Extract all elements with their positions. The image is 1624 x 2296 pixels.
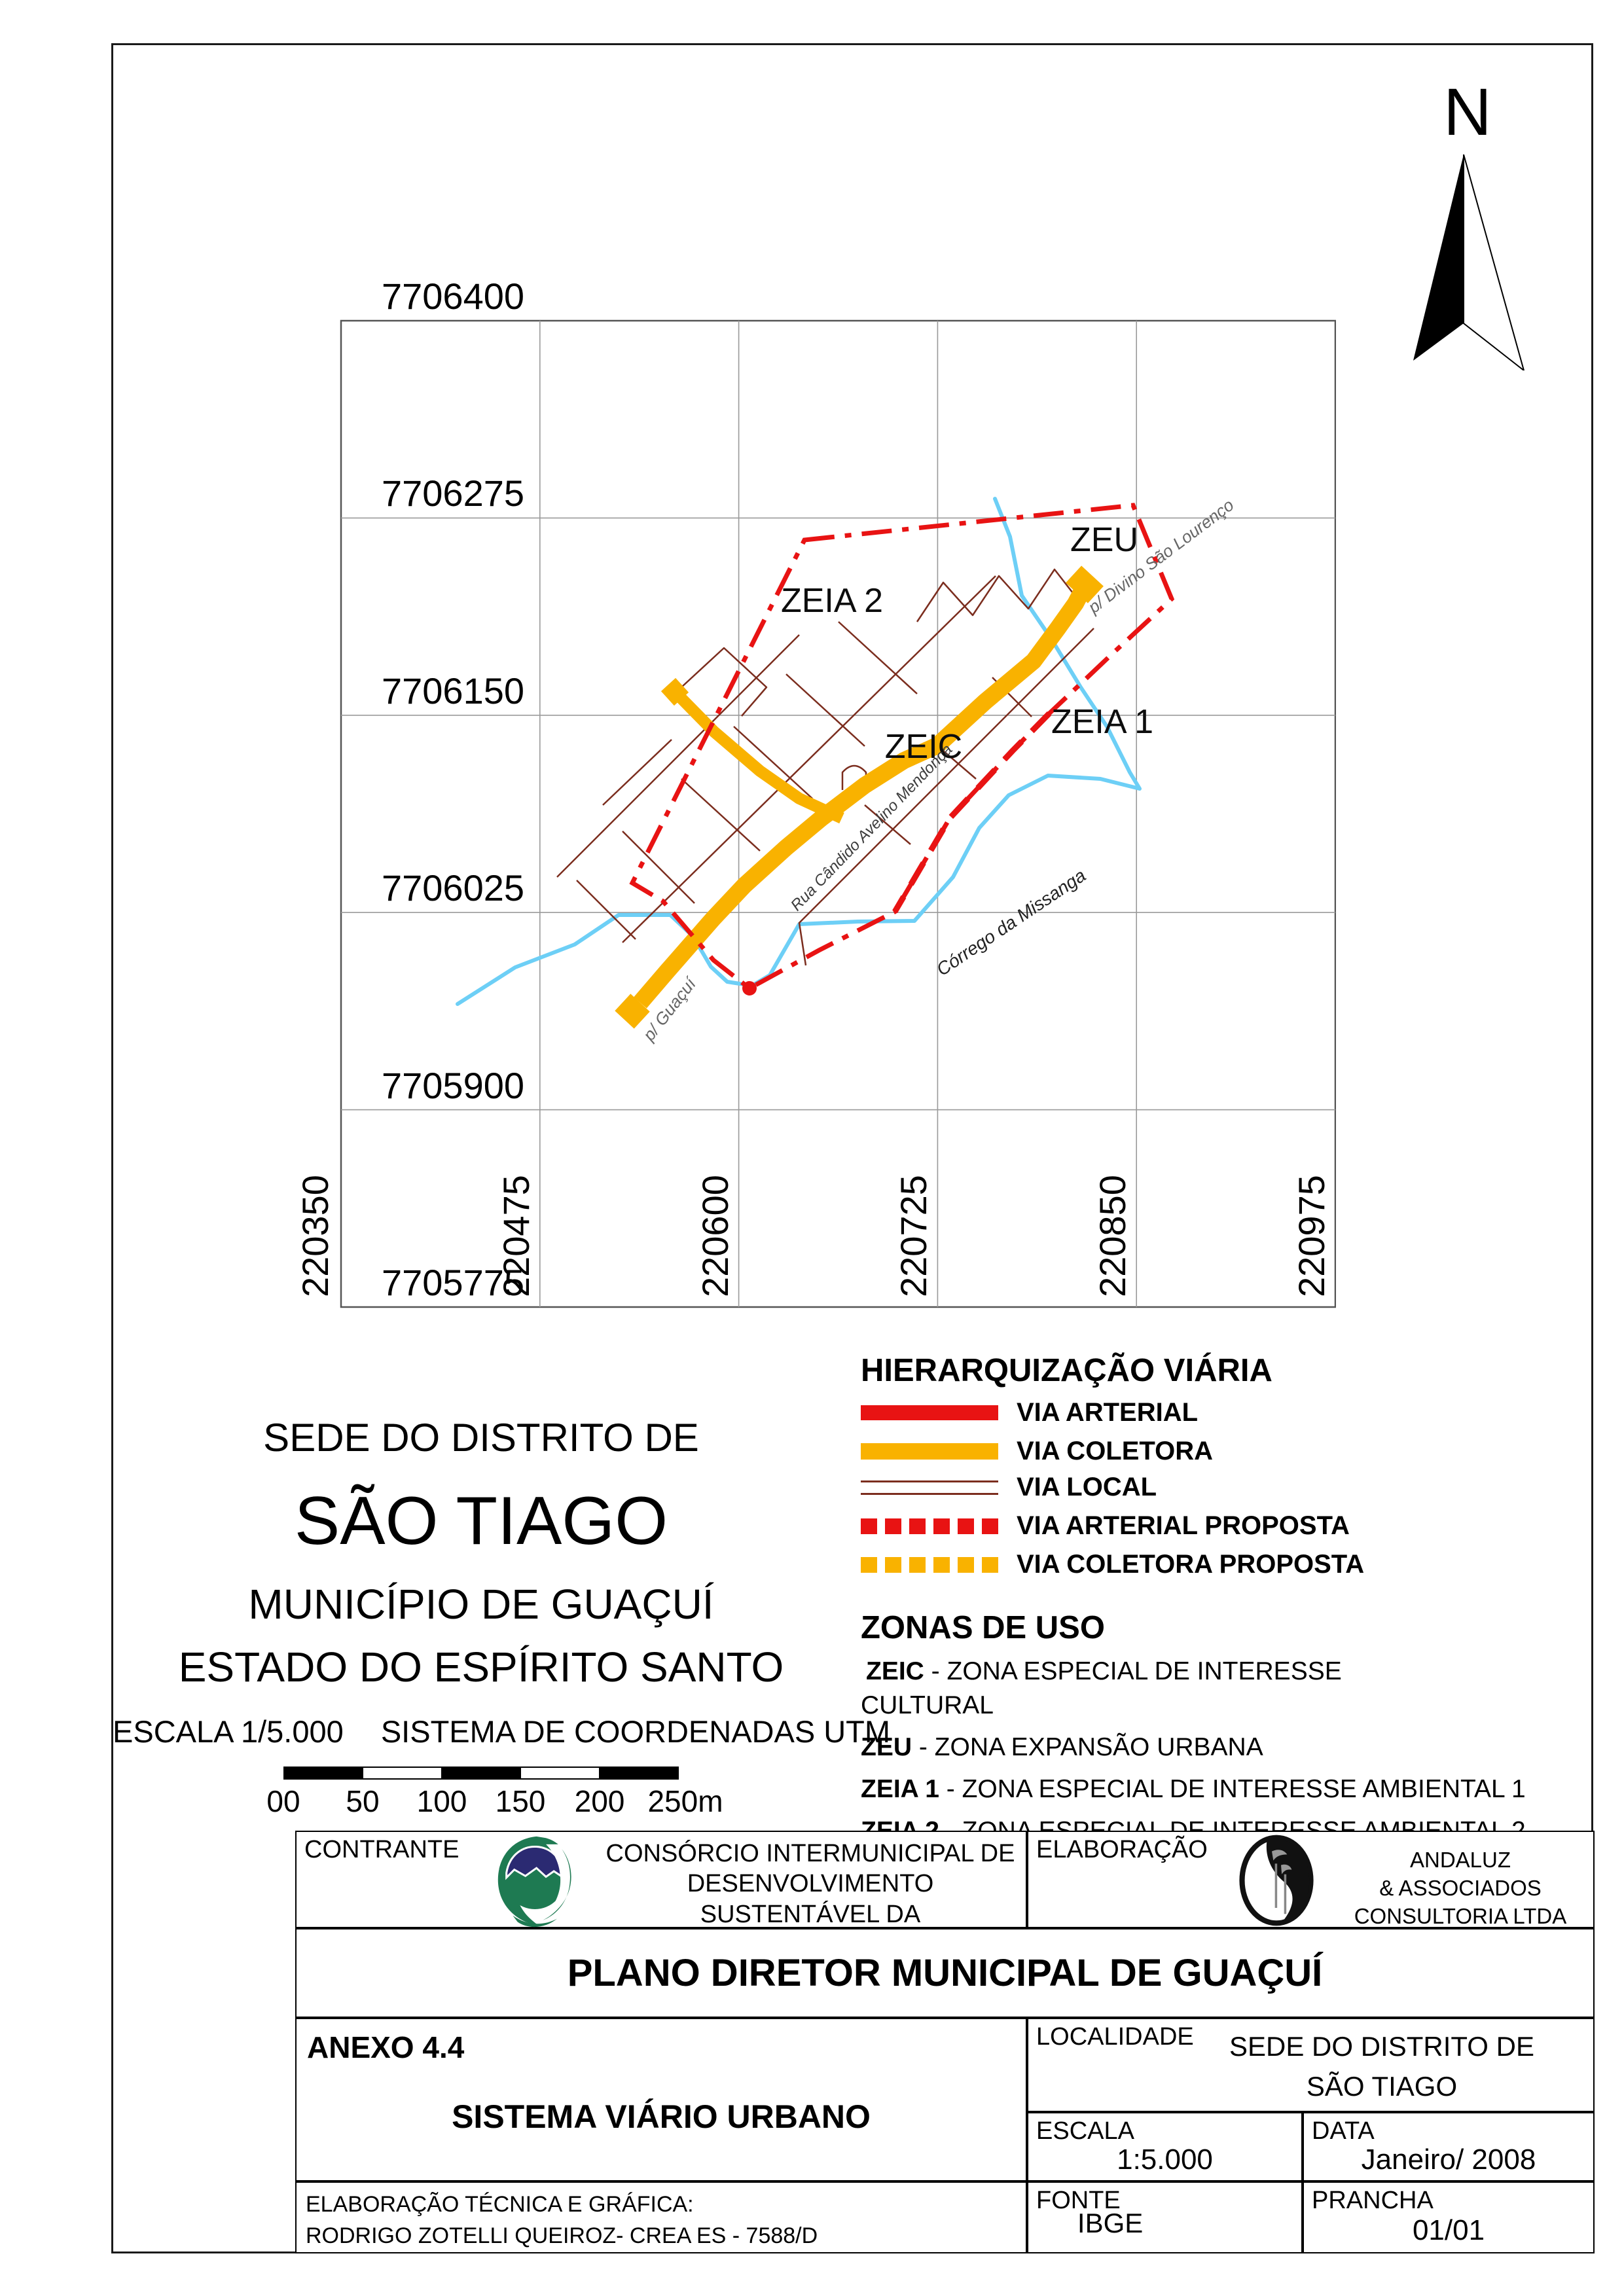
legend-item-arterial-proposta: VIA ARTERIAL PROPOSTA [861, 1511, 1607, 1541]
road-coletora-branch-cap [668, 685, 681, 699]
coords-text: SISTEMA DE COORDENADAS UTM [381, 1714, 890, 1749]
elaboracao-name-line: CONSULTORIA LTDA [1336, 1903, 1585, 1931]
x-label: 220350 [295, 1175, 336, 1297]
legend: HIERARQUIZAÇÃO VIÁRIA VIA ARTERIAL VIA C… [861, 1352, 1607, 1906]
scale-tick: 250m [633, 1784, 738, 1819]
legend-item-label: VIA ARTERIAL [1017, 1398, 1198, 1427]
tecnica-line: RODRIGO ZOTELLI QUEIROZ- CREA ES - 7588/… [306, 2221, 818, 2252]
north-arrow: N [1393, 79, 1543, 374]
elaboracao-cell: ELABORAÇÃO ANDALUZ & ASSOCIADOS CONSULTO… [1027, 1831, 1595, 1928]
fonte-value: IBGE [1028, 2208, 1192, 2239]
legend-item-coletora-proposta: VIA COLETORA PROPOSTA [861, 1550, 1607, 1579]
zone-label-zeia2: ZEIA 2 [781, 582, 883, 620]
scale-bar-segment [362, 1768, 442, 1778]
scale-bar-segment [285, 1768, 362, 1778]
y-label: 7705900 [382, 1065, 524, 1106]
y-label: 7706150 [382, 670, 524, 711]
map-sheet: N [0, 0, 1624, 2296]
zone-entry-zeia1: ZEIA 1 - ZONA ESPECIAL DE INTERESSE AMBI… [861, 1773, 1607, 1806]
scale-bar-segment [520, 1768, 600, 1778]
legend-title: HIERARQUIZAÇÃO VIÁRIA [861, 1352, 1607, 1389]
x-label: 220850 [1092, 1175, 1133, 1297]
map-canvas: ZEIA 2 ZEU ZEIC ZEIA 1 Rua Cândido Aveli… [262, 262, 1336, 1368]
sheet-subtitle: SISTEMA VIÁRIO URBANO [297, 2098, 1026, 2136]
zone-desc: - ZONA ESPECIAL DE INTERESSE AMBIENTAL 1 [939, 1775, 1526, 1803]
elaboracao-label: ELABORAÇÃO [1036, 1836, 1208, 1864]
zone-label-zeia1: ZEIA 1 [1051, 703, 1153, 741]
legend-item-coletora: VIA COLETORA [861, 1437, 1607, 1466]
scale-bar-segment [442, 1768, 520, 1778]
legend-item-label: VIA COLETORA PROPOSTA [1017, 1550, 1364, 1579]
localidade-cell: LOCALIDADE SEDE DO DISTRITO DE SÃO TIAGO [1027, 2018, 1595, 2112]
data-value: Janeiro/ 2008 [1304, 2144, 1593, 2176]
map-title-block: SEDE DO DISTRITO DE SÃO TIAGO MUNICÍPIO … [98, 1415, 864, 1820]
title-block: CONTRANTE CONSÓRCIO INTERMUNICIPAL DE DE… [295, 1831, 1595, 2253]
tecnica-credits: ELABORAÇÃO TÉCNICA E GRÁFICA: RODRIGO ZO… [306, 2189, 818, 2251]
x-label: 220975 [1291, 1175, 1332, 1297]
prancha-value: 01/01 [1304, 2214, 1593, 2247]
zone-desc: - ZONA ESPECIAL DE INTERESSE [924, 1657, 1342, 1685]
legend-item-label: VIA LOCAL [1017, 1473, 1157, 1502]
district-name: SÃO TIAGO [98, 1482, 864, 1560]
localidade-line: SEDE DO DISTRITO DE [1179, 2027, 1585, 2067]
elaboracao-name-line: ANDALUZ [1336, 1846, 1585, 1874]
zone-label-zeu: ZEU [1070, 521, 1138, 559]
zone-code: ZEU [861, 1733, 912, 1761]
x-label: 220600 [695, 1175, 736, 1297]
road-coletora-main-ne-cap [1077, 576, 1092, 593]
zones-title: ZONAS DE USO [861, 1609, 1607, 1646]
legend-item-label: VIA COLETORA [1017, 1437, 1213, 1466]
tecnica-cell: ELABORAÇÃO TÉCNICA E GRÁFICA: RODRIGO ZO… [295, 2181, 1027, 2253]
zone-code: ZEIA 1 [861, 1775, 939, 1803]
zone-desc: - ZONA EXPANSÃO URBANA [912, 1733, 1263, 1761]
localidade-line: SÃO TIAGO [1179, 2067, 1585, 2107]
arterial-swatch [861, 1405, 998, 1420]
map-svg: ZEIA 2 ZEU ZEIC ZEIA 1 Rua Cândido Aveli… [262, 262, 1336, 1368]
zone-entry-zeic: ZEIC - ZONA ESPECIAL DE INTERESSE [866, 1655, 1607, 1688]
north-label: N [1393, 79, 1543, 145]
prancha-cell: PRANCHA 01/01 [1303, 2181, 1595, 2253]
y-label: 7706275 [382, 473, 524, 514]
contratante-name-line: CONSÓRCIO INTERMUNICIPAL DE [604, 1839, 1017, 1869]
scale-bar [283, 1767, 679, 1780]
elaboracao-name-line: & ASSOCIADOS [1336, 1874, 1585, 1903]
scale-and-coords: ESCALA 1/5.000 SISTEMA DE COORDENADAS UT… [98, 1713, 864, 1749]
escala-label: ESCALA [1036, 2117, 1134, 2145]
data-cell: DATA Janeiro/ 2008 [1303, 2112, 1595, 2181]
tecnica-line: ELABORAÇÃO TÉCNICA E GRÁFICA: [306, 2189, 818, 2221]
prancha-label: PRANCHA [1312, 2187, 1434, 2215]
arterial-proposta-swatch [861, 1518, 998, 1534]
elaboracao-name: ANDALUZ & ASSOCIADOS CONSULTORIA LTDA [1336, 1846, 1585, 1931]
caparao-logo [490, 1833, 586, 1928]
x-label: 220475 [496, 1175, 537, 1297]
municipality: MUNICÍPIO DE GUAÇUÍ [98, 1580, 864, 1628]
perimeter-vertex-dot [742, 981, 757, 996]
localidade-label: LOCALIDADE [1036, 2023, 1194, 2051]
legend-item-label: VIA ARTERIAL PROPOSTA [1017, 1511, 1350, 1541]
plan-title-cell: PLANO DIRETOR MUNICIPAL DE GUAÇUÍ [295, 1928, 1595, 2018]
fonte-cell: FONTE IBGE [1027, 2181, 1303, 2253]
district-heading: SEDE DO DISTRITO DE [98, 1415, 864, 1460]
zone-entry-zeu: ZEU - ZONA EXPANSÃO URBANA [861, 1731, 1607, 1764]
local-swatch [861, 1480, 998, 1495]
contratante-cell: CONTRANTE CONSÓRCIO INTERMUNICIPAL DE DE… [295, 1831, 1027, 1928]
scale-bar-labels: 00 50 100 150 200 250m [283, 1784, 679, 1820]
north-arrow-icon [1401, 154, 1536, 370]
zone-code: ZEIC [866, 1657, 924, 1685]
anexo-cell: ANEXO 4.4 SISTEMA VIÁRIO URBANO [295, 2018, 1027, 2181]
x-label: 220725 [893, 1175, 934, 1297]
y-label: 7706400 [382, 276, 524, 317]
data-label: DATA [1312, 2117, 1375, 2145]
anexo-number: ANEXO 4.4 [307, 2030, 464, 2065]
andaluz-logo [1238, 1835, 1315, 1926]
legend-item-arterial: VIA ARTERIAL [861, 1398, 1607, 1427]
coletora-proposta-swatch [861, 1557, 998, 1573]
road-coletora-main-sw-cap [624, 1003, 640, 1020]
zone-entry-zeic-line2: CULTURAL [861, 1689, 1607, 1722]
contratante-label: CONTRANTE [304, 1836, 459, 1864]
coletora-swatch [861, 1443, 998, 1460]
contratante-name-line: DESENVOLVIMENTO SUSTENTÁVEL DA [604, 1869, 1017, 1929]
escala-value: 1:5.000 [1028, 2144, 1301, 2176]
y-label: 7706025 [382, 867, 524, 908]
scale-bar-segment [600, 1768, 677, 1778]
legend-item-local: VIA LOCAL [861, 1473, 1607, 1502]
state: ESTADO DO ESPÍRITO SANTO [98, 1643, 864, 1691]
plan-title: PLANO DIRETOR MUNICIPAL DE GUAÇUÍ [297, 1929, 1593, 2017]
localidade-value: SEDE DO DISTRITO DE SÃO TIAGO [1179, 2027, 1585, 2107]
scale-text: ESCALA 1/5.000 [113, 1714, 344, 1749]
escala-cell: ESCALA 1:5.000 [1027, 2112, 1303, 2181]
zone-label-zeic: ZEIC [885, 728, 962, 766]
